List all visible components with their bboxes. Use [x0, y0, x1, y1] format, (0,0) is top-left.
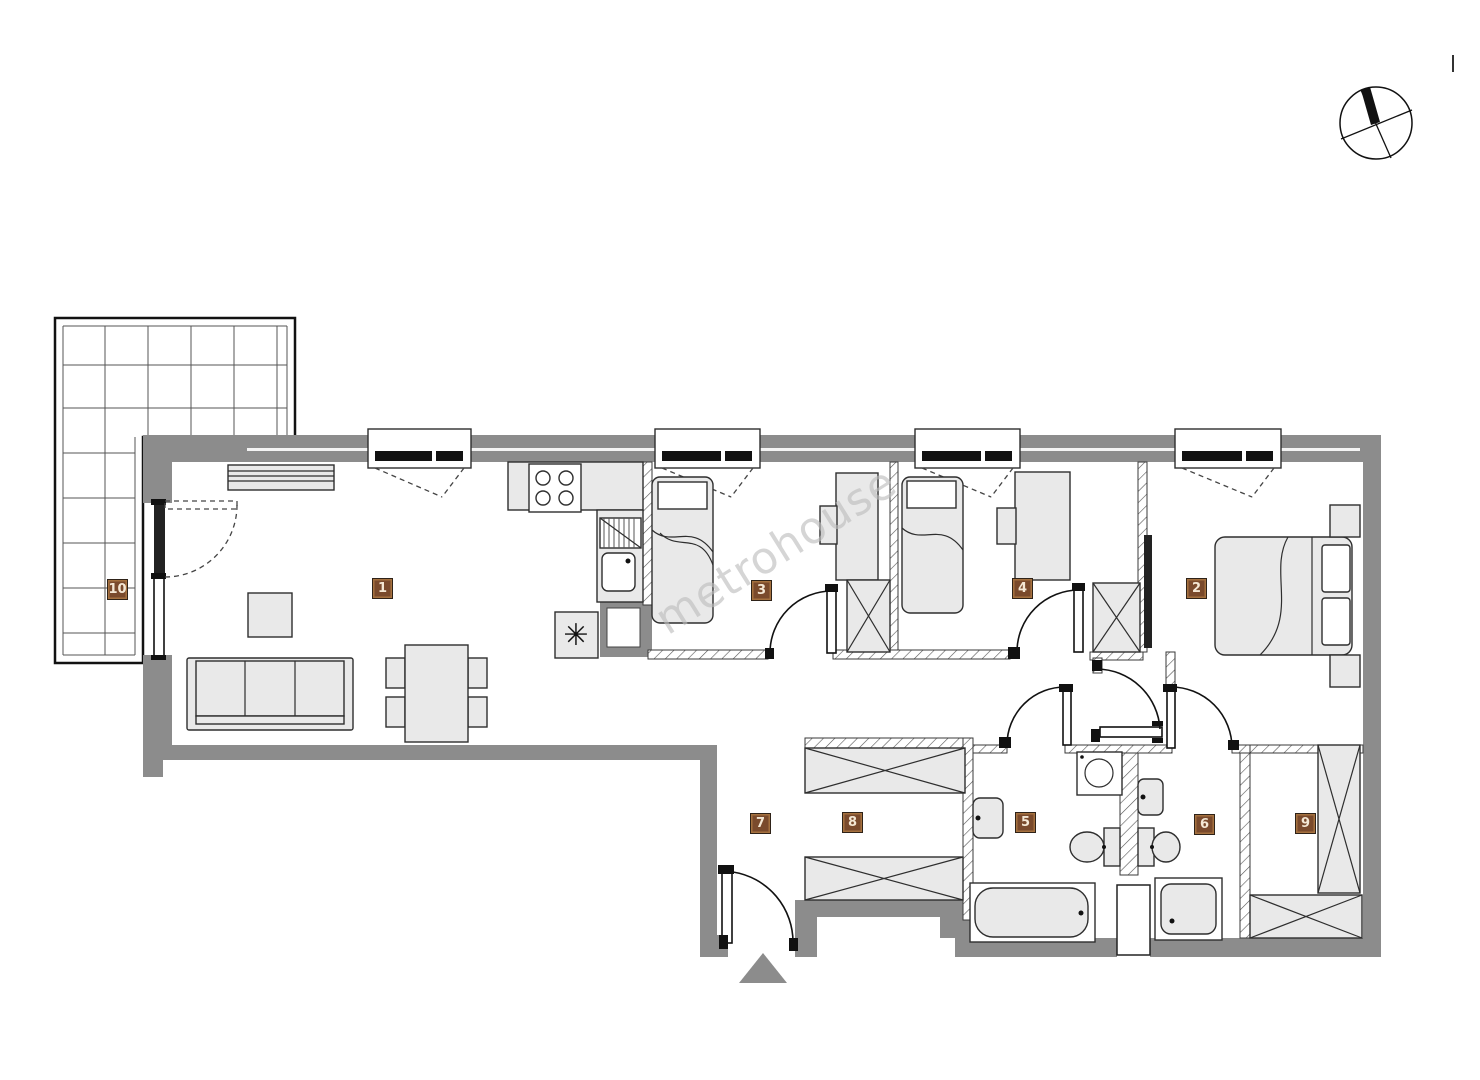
door-bath6 — [1163, 684, 1239, 750]
toilet-bath6 — [1138, 828, 1180, 866]
sink-bath6 — [1138, 779, 1163, 815]
dining-table — [386, 645, 487, 742]
svg-text:✳: ✳ — [563, 618, 588, 653]
sink-bath5 — [973, 798, 1003, 838]
bed-room4 — [902, 477, 963, 613]
floor-plan-drawing: ✳ — [0, 0, 1480, 1080]
shower — [1155, 878, 1222, 940]
room-label-7: 7 — [750, 813, 771, 834]
wardrobe-hall-bottom — [805, 857, 963, 900]
wardrobe-room3 — [847, 580, 890, 652]
kitchen-sink — [602, 553, 635, 591]
room-label-6: 6 — [1194, 814, 1215, 835]
toilet-bath5 — [1070, 828, 1120, 866]
double-bed — [1215, 537, 1352, 655]
room-label-8: 8 — [842, 812, 863, 833]
desk-room4 — [997, 472, 1070, 580]
room-label-2: 2 — [1186, 578, 1207, 599]
floor-plan: ✳ — [0, 0, 1480, 1080]
room-label-10: 10 — [107, 579, 128, 600]
shaft — [1117, 885, 1150, 955]
bathtub — [970, 883, 1095, 942]
room-label-4: 4 — [1012, 578, 1033, 599]
washing-machine — [1077, 752, 1122, 795]
fridge-icon: ✳ — [555, 612, 598, 658]
wardrobe-room9-vertical — [1318, 745, 1360, 893]
north-compass-icon — [1340, 87, 1412, 159]
sofa — [187, 658, 353, 730]
window-room2 — [1175, 429, 1281, 497]
door-entrance — [718, 865, 798, 951]
entrance-arrow — [739, 953, 787, 983]
nightstand-bottom — [1330, 655, 1360, 687]
nightstand-top — [1330, 505, 1360, 537]
wardrobe-room9-horizontal — [1250, 895, 1362, 938]
room-label-1: 1 — [372, 578, 393, 599]
kitchen-drainer — [600, 518, 641, 548]
coffee-table — [248, 593, 292, 637]
door-room3 — [765, 584, 838, 659]
door-balcony — [151, 499, 237, 660]
window-living-room — [368, 429, 471, 497]
kitchen-stove — [529, 464, 581, 512]
room-label-9: 9 — [1295, 813, 1316, 834]
door-bath5 — [999, 684, 1073, 748]
sideboard — [228, 465, 334, 490]
room-label-5: 5 — [1015, 812, 1036, 833]
wardrobe-hall-top — [805, 748, 965, 793]
